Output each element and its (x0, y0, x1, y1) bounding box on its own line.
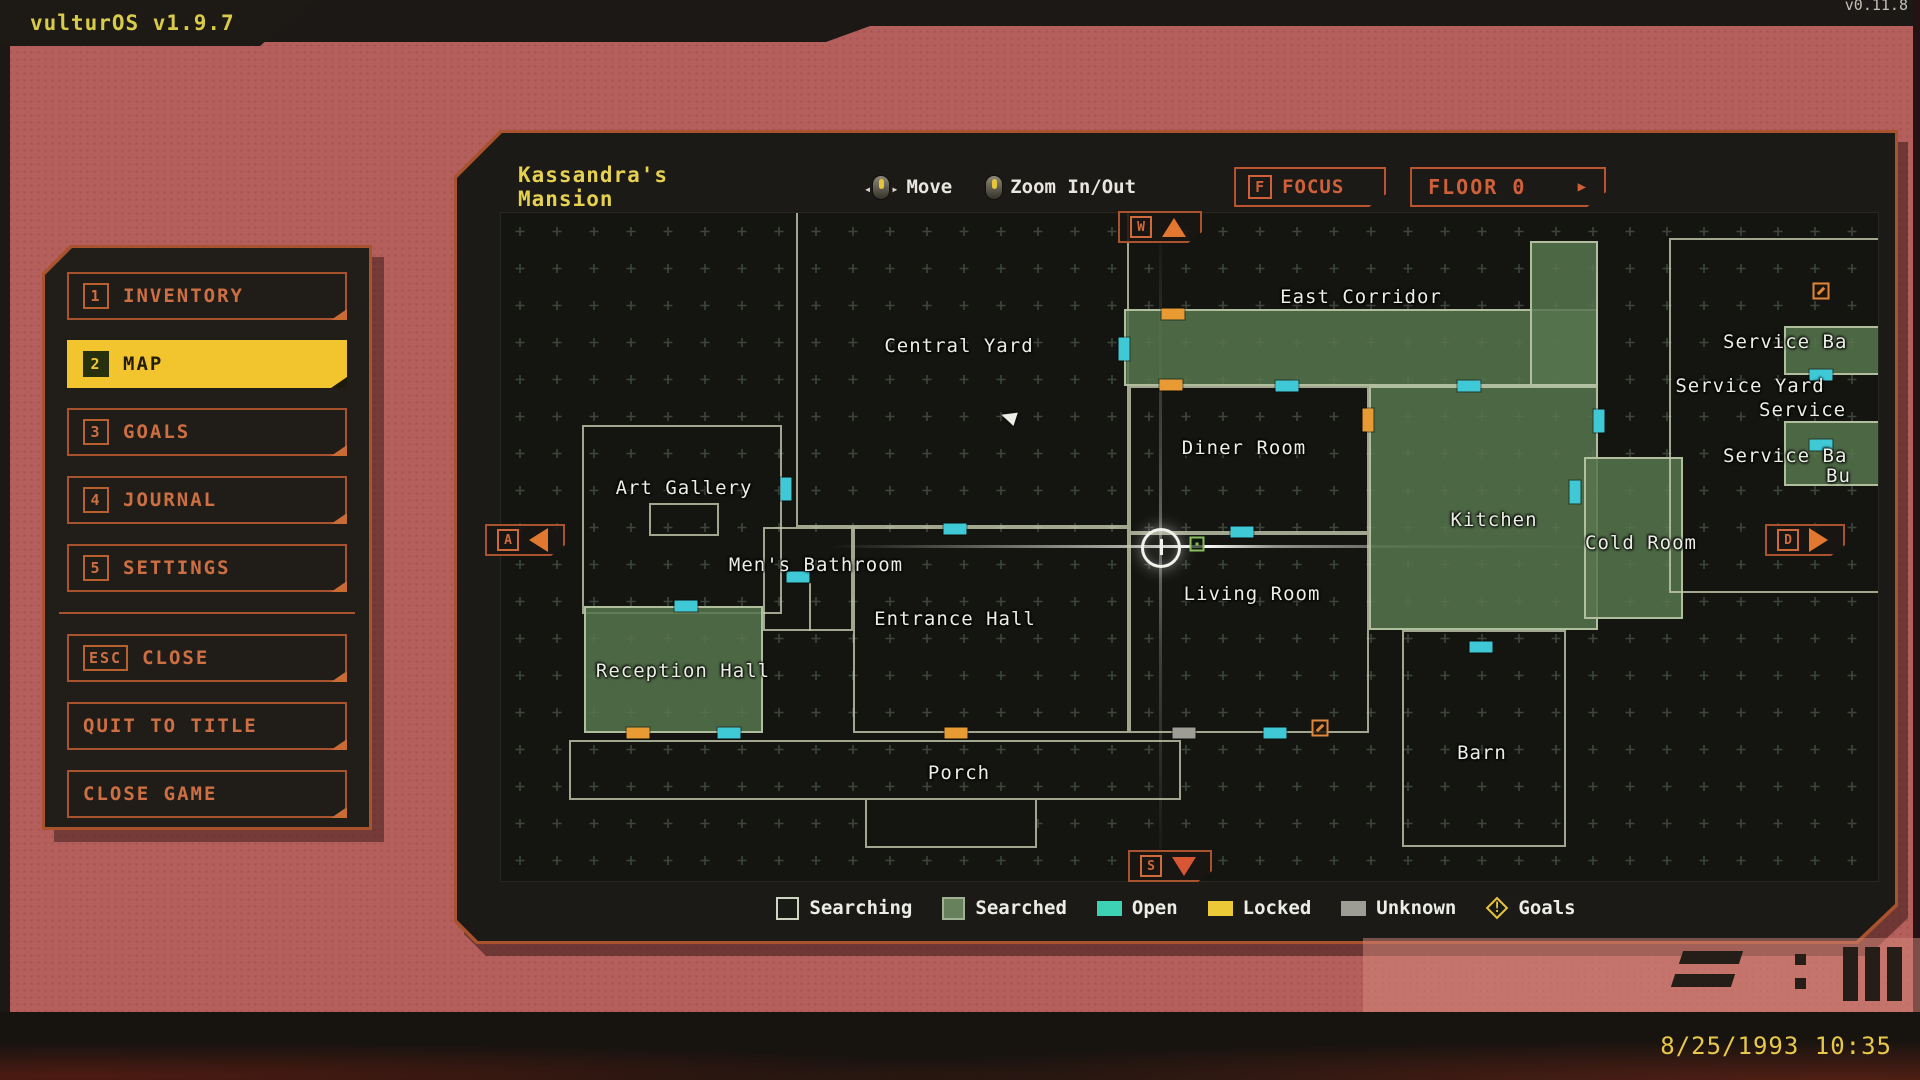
room-diner-room (1129, 386, 1369, 533)
sidebar-item-label: CLOSE GAME (83, 783, 217, 805)
sidebar-content: 1 INVENTORY 2 MAP 3 GOALS 4 JOURNAL 5 SE… (45, 248, 369, 827)
zoom-hint-label: Zoom In/Out (1010, 176, 1136, 198)
key-badge: 2 (83, 351, 109, 377)
game-datetime: 8/25/1993 10:35 (1660, 1032, 1892, 1060)
sidebar-item-label: CLOSE (142, 647, 209, 669)
door-open (1470, 642, 1493, 653)
deco-dots-icon (1795, 978, 1806, 989)
goals-diamond-icon: ! (1486, 897, 1509, 920)
door-open (781, 478, 792, 501)
key-w-badge: W (1130, 216, 1152, 238)
room-porch (569, 740, 1181, 800)
door-open (675, 601, 698, 612)
legend-locked: Locked (1208, 897, 1312, 919)
door-open (1276, 381, 1299, 392)
room-label: Service Ba (1723, 445, 1847, 467)
pan-down-button[interactable]: S (1128, 850, 1212, 882)
key-d-badge: D (1777, 529, 1799, 551)
room-label: Kitchen (1450, 509, 1537, 531)
room-label: Art Gallery (616, 477, 753, 499)
deco-dots-icon (1795, 954, 1806, 965)
sidebar-menu: 1 INVENTORY 2 MAP 3 GOALS 4 JOURNAL 5 SE… (42, 245, 372, 830)
room-east-corridor (1124, 309, 1598, 386)
pan-left-button[interactable]: A (485, 524, 565, 556)
door-open (1231, 527, 1254, 538)
legend-searched: Searched (942, 897, 1067, 920)
left-arrow-icon (864, 176, 865, 198)
sidebar-item-label: JOURNAL (123, 489, 217, 511)
sidebar-separator (59, 612, 355, 614)
searched-swatch (942, 897, 965, 920)
room-bathroom-divider (809, 583, 811, 631)
room-label: Service (1759, 399, 1846, 421)
key-a-badge: A (497, 529, 519, 551)
legend-open: Open (1097, 897, 1178, 919)
room-kitchen (1369, 386, 1598, 630)
sidebar-item-label: QUIT TO TITLE (83, 715, 258, 737)
room-label: Entrance Hall (874, 608, 1036, 630)
key-badge: 4 (83, 487, 109, 513)
door-open (1119, 338, 1130, 361)
sidebar-item-label: SETTINGS (123, 557, 231, 579)
arrow-up-icon (1162, 218, 1186, 237)
deco-bars-icon (1671, 974, 1735, 987)
legend-goals: ! Goals (1486, 897, 1575, 919)
deco-pipes-icon (1887, 947, 1902, 1001)
room-label: Cold Room (1585, 532, 1697, 554)
door-open (1594, 410, 1605, 433)
map-title: Kassandra's Mansion (518, 163, 768, 211)
sidebar-item-label: MAP (123, 353, 163, 375)
screen: vulturOS v1.9.7 v0.11.8 1 INVENTORY 2 MA… (0, 0, 1920, 1080)
door-locked (1162, 309, 1185, 320)
door-open (1264, 728, 1287, 739)
key-badge: ESC (83, 645, 128, 671)
legend-searching: Searching (776, 897, 912, 920)
map-legend: Searching Searched Open Locked Unknown !… (454, 888, 1898, 928)
door-unknown (1173, 728, 1196, 739)
locked-swatch (1208, 901, 1233, 916)
map-header: Kassandra's Mansion Move Zoom In/Out F F… (518, 164, 1862, 210)
door-locked (1160, 380, 1183, 391)
key-s-badge: S (1140, 855, 1162, 877)
legend-label: Locked (1243, 897, 1312, 919)
door-locked (945, 728, 968, 739)
door-locked (627, 728, 650, 739)
room-east-corridor-upper (1530, 241, 1598, 386)
floor-label: FLOOR 0 (1428, 175, 1526, 199)
door-open (1458, 381, 1481, 392)
room-label: Barn (1457, 742, 1507, 764)
arrow-right-icon (1809, 528, 1828, 552)
sidebar-item-journal[interactable]: 4 JOURNAL (67, 476, 347, 524)
searching-swatch (776, 897, 799, 920)
room-label: Service Yard (1675, 375, 1824, 397)
legend-unknown: Unknown (1341, 897, 1456, 919)
open-swatch (1097, 901, 1122, 916)
deco-pipes-icon (1865, 947, 1880, 1001)
room-label: East Corridor (1280, 286, 1442, 308)
left-frame (0, 0, 10, 1080)
key-badge: 1 (83, 283, 109, 309)
room-label: Service Ba (1723, 331, 1847, 353)
room-label: Reception Hall (596, 660, 770, 682)
sidebar-item-label: GOALS (123, 421, 190, 443)
bottom-bar: 8/25/1993 10:35 (0, 1012, 1920, 1080)
room-label: Central Yard (884, 335, 1033, 357)
arrow-down-icon (1172, 857, 1196, 876)
room-label: Diner Room (1182, 437, 1306, 459)
pan-right-button[interactable]: D (1765, 524, 1845, 556)
deco-bars-icon (1679, 951, 1743, 964)
legend-label: Searched (975, 897, 1067, 919)
room-central-yard (796, 212, 1129, 527)
sidebar-item-goals[interactable]: 3 GOALS (67, 408, 347, 456)
right-arrow-icon (897, 176, 898, 198)
goal-marker-icon (1813, 283, 1830, 300)
sidebar-item-map[interactable]: 2 MAP (67, 340, 347, 388)
mouse-move-icon (873, 176, 889, 199)
legend-label: Goals (1518, 897, 1575, 919)
room-label: Porch (928, 762, 990, 784)
room-gallery-closet (649, 503, 719, 536)
corner-version: v0.11.8 (1845, 0, 1908, 14)
move-hint: Move (864, 176, 952, 199)
legend-label: Searching (809, 897, 912, 919)
door-open (1570, 481, 1581, 504)
door-locked (1363, 409, 1374, 432)
legend-label: Unknown (1376, 897, 1456, 919)
mouse-wheel-icon (986, 176, 1002, 199)
sidebar-item-close-game[interactable]: CLOSE GAME (67, 770, 347, 818)
focus-key-badge: F (1248, 175, 1272, 199)
right-frame (1913, 0, 1920, 1080)
floor-selector[interactable]: FLOOR 0 ▶ (1410, 167, 1606, 207)
key-badge: 3 (83, 419, 109, 445)
chevron-right-icon: ▶ (1578, 179, 1588, 195)
legend-label: Open (1132, 897, 1178, 919)
unknown-swatch (1341, 901, 1366, 916)
sidebar-item-quit-to-title[interactable]: QUIT TO TITLE (67, 702, 347, 750)
map-viewport[interactable]: Central YardEast CorridorArt GalleryDine… (500, 212, 1879, 882)
door-open (718, 728, 741, 739)
focus-label: FOCUS (1282, 176, 1344, 198)
pan-up-button[interactable]: W (1118, 211, 1202, 243)
os-title-tab: vulturOS v1.9.7 (0, 0, 312, 46)
room-label: Men's Bathroom (729, 554, 903, 576)
sidebar-item-inventory[interactable]: 1 INVENTORY (67, 272, 347, 320)
item-marker-icon (1190, 537, 1205, 552)
zoom-hint: Zoom In/Out (978, 176, 1136, 199)
room-label: Living Room (1184, 583, 1321, 605)
door-open (944, 524, 967, 535)
key-badge: 5 (83, 555, 109, 581)
os-title: vulturOS v1.9.7 (30, 11, 235, 35)
goal-marker-icon (1312, 720, 1329, 737)
move-hint-label: Move (906, 176, 952, 198)
arrow-left-icon (529, 528, 548, 552)
map-panel: Kassandra's Mansion Move Zoom In/Out F F… (454, 130, 1898, 944)
sidebar-item-close[interactable]: ESC CLOSE (67, 634, 347, 682)
player-marker (1141, 528, 1181, 568)
focus-button[interactable]: F FOCUS (1234, 167, 1386, 207)
sidebar-item-settings[interactable]: 5 SETTINGS (67, 544, 347, 592)
deco-overlay (1363, 938, 1920, 1012)
sidebar-item-label: INVENTORY (123, 285, 244, 307)
room-label: Bu (1826, 465, 1851, 487)
room-barn (1402, 630, 1566, 847)
room-porch-steps (865, 798, 1037, 848)
deco-pipes-icon (1843, 947, 1858, 1001)
